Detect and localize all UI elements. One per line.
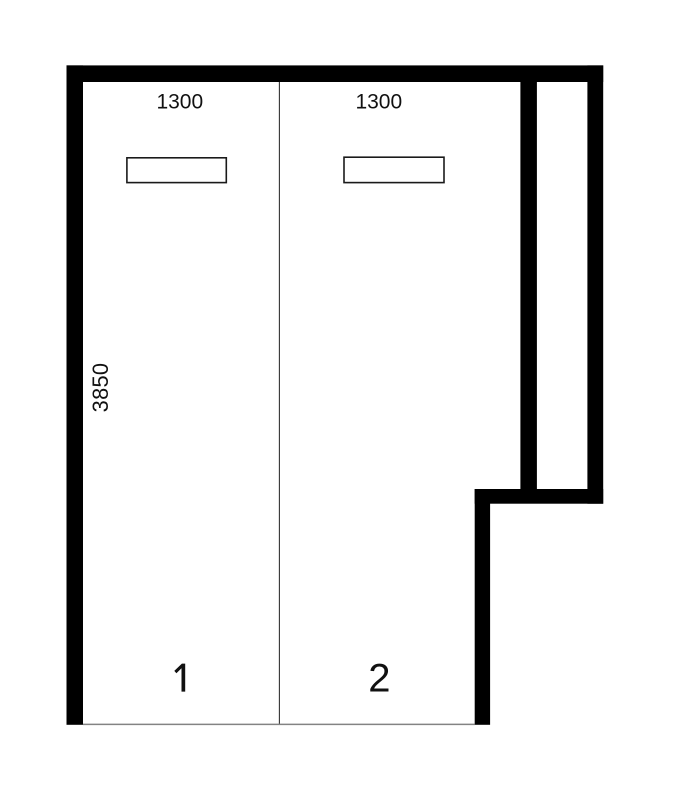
svg-text:1300: 1300 bbox=[156, 91, 203, 114]
svg-text:3850: 3850 bbox=[88, 363, 113, 413]
svg-text:1300: 1300 bbox=[355, 91, 402, 114]
svg-text:2: 2 bbox=[368, 657, 390, 701]
